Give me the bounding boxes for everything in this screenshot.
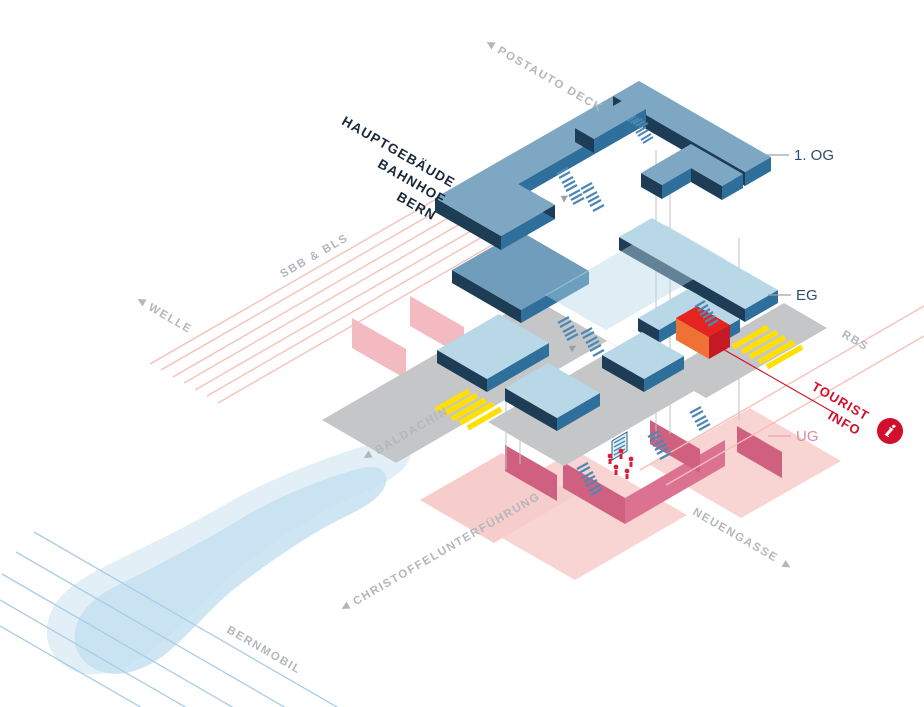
arrow-right-icon <box>782 560 793 571</box>
svg-text:NEUENGASSE: NEUENGASSE <box>691 506 781 565</box>
label-bernmobil: BERNMOBIL <box>225 624 304 676</box>
floor-label-1og-text: 1. OG <box>794 147 834 164</box>
welle-roof-shape <box>47 438 411 674</box>
direction-arrow-icon <box>559 193 568 203</box>
label-rbs: RBS <box>840 329 871 354</box>
arrow-left-icon <box>485 39 496 50</box>
stairs-icon <box>557 168 584 204</box>
station-isometric-diagram: 1. OG EG UG HAUPTGEBÄUDE BAHNHOF BERN PO… <box>0 0 924 707</box>
label-postauto-deck: POSTAUTO DECK <box>483 38 605 115</box>
info-icon: i <box>872 413 908 449</box>
floor-label-ug-text: UG <box>796 428 819 445</box>
svg-text:WELLE: WELLE <box>146 302 194 337</box>
stairs-icon <box>690 407 710 430</box>
svg-text:SBB & BLS: SBB & BLS <box>279 232 351 281</box>
svg-text:BERNMOBIL: BERNMOBIL <box>225 624 304 676</box>
svg-text:RBS: RBS <box>840 329 871 354</box>
label-sbb-bls: SBB & BLS <box>279 232 351 281</box>
ug-ramp-wall-nw1 <box>352 318 406 379</box>
svg-text:POSTAUTO DECK: POSTAUTO DECK <box>495 45 604 115</box>
arrow-left-icon <box>340 602 351 613</box>
floor-label-eg-text: EG <box>796 287 818 304</box>
stairs-icon <box>581 183 604 211</box>
label-welle: WELLE <box>134 295 194 337</box>
floor-label-1og: 1. OG <box>766 147 834 164</box>
arrow-left-icon <box>136 296 147 307</box>
diagram-svg: 1. OG EG UG HAUPTGEBÄUDE BAHNHOF BERN PO… <box>0 0 924 707</box>
ug-plate-east <box>650 408 841 518</box>
